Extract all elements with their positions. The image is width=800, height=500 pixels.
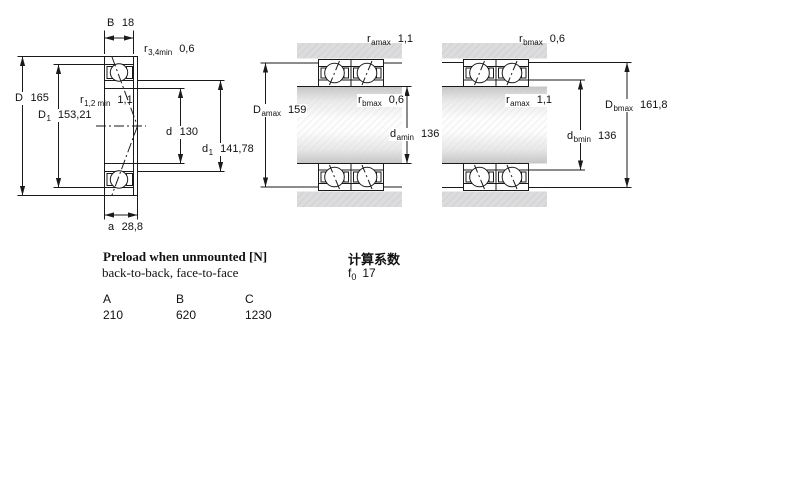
- dim-label-a: a28,8: [107, 221, 144, 234]
- ball: [110, 171, 127, 188]
- ball: [110, 64, 127, 81]
- dim-label-r34min: r3,4min0,6: [143, 43, 195, 56]
- dim-label-Dbmax: Dbmax161,8: [604, 99, 669, 112]
- dim-label-ramax-b: ramax1,1: [505, 94, 553, 107]
- single-bearing-diagram: [18, 31, 225, 220]
- housing-section: [442, 192, 547, 208]
- dim-label-D1: D1153,21: [37, 109, 93, 122]
- dim-label-B: B18: [106, 17, 135, 30]
- dim-label-rbmax-b: rbmax0,6: [518, 33, 566, 46]
- dim-label-r12min: r1,2 min1,1: [79, 94, 134, 107]
- dim-label-d: d130: [165, 126, 199, 139]
- dim-label-ramax-a: ramax1,1: [366, 33, 414, 46]
- preload-value-a: 210: [103, 308, 176, 322]
- paired-bearing-diagram-b: [442, 43, 632, 207]
- dim-label-rbmax-a: rbmax0,6: [357, 94, 405, 107]
- calculation-factor-f0: f017: [348, 266, 376, 280]
- preload-table-header: ABC: [103, 292, 305, 306]
- dim-label-dbmin: dbmin136: [566, 130, 617, 143]
- housing-section: [297, 192, 402, 208]
- bearing-spec-page: B18 r3,4min0,6 D165 D1153,21 r1,2 min1,1…: [0, 0, 800, 500]
- preload-col-b: B: [176, 292, 245, 306]
- dim-label-D: D165: [14, 92, 50, 105]
- preload-title: Preload when unmounted [N]: [103, 249, 267, 265]
- preload-value-c: 1230: [245, 308, 305, 322]
- paired-bearing-diagram-a: [261, 43, 412, 207]
- dim-label-Damax: Damax159: [252, 104, 307, 117]
- preload-subtitle: back-to-back, face-to-face: [102, 265, 238, 281]
- preload-table-values: 2106201230: [103, 308, 305, 322]
- dim-label-d1: d1141,78: [201, 143, 255, 156]
- preload-value-b: 620: [176, 308, 245, 322]
- dim-label-damin: damin136: [389, 128, 440, 141]
- preload-col-a: A: [103, 292, 176, 306]
- preload-col-c: C: [245, 292, 305, 306]
